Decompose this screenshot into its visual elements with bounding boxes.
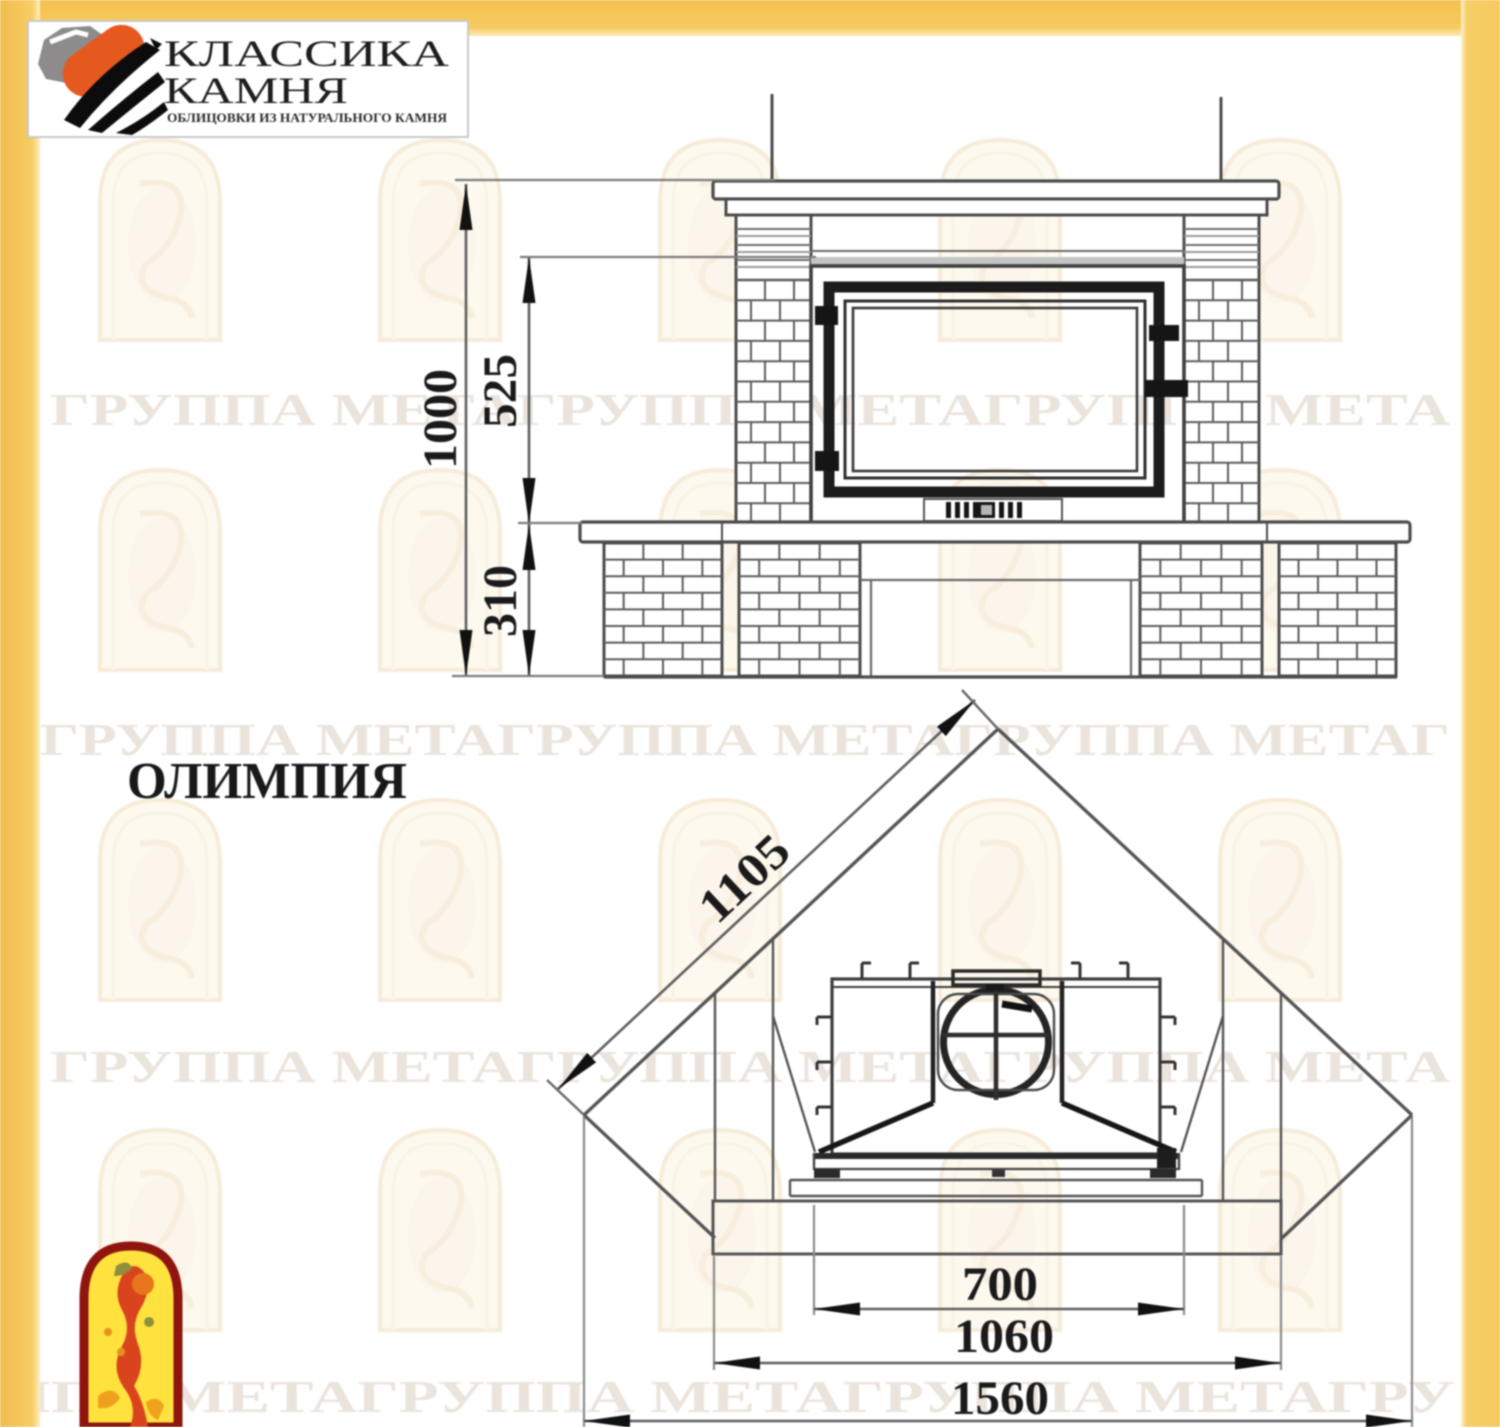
svg-text:525: 525 [474,354,527,428]
svg-text:КАМНЯ: КАМНЯ [164,71,348,112]
svg-text:ППА МЕТАГРУППА МЕТАГРУППА МЕТА: ППА МЕТАГРУППА МЕТАГРУППА МЕТАГРУ [0,1371,1455,1422]
svg-text:310: 310 [474,565,527,637]
svg-text:ГРУППА МЕТАГРУППА МЕТАГРУППА М: ГРУППА МЕТАГРУППА МЕТАГРУППА МЕТА [50,1041,1450,1092]
svg-text:ОБЛИЦОВКИ ИЗ НАТУРАЛЬНОГО КАМН: ОБЛИЦОВКИ ИЗ НАТУРАЛЬНОГО КАМНЯ [167,110,448,125]
svg-text:1000: 1000 [414,369,467,469]
svg-text:ОЛИМПИЯ: ОЛИМПИЯ [127,753,407,810]
svg-text:1560: 1560 [951,1372,1049,1425]
svg-text:700: 700 [962,1258,1038,1311]
svg-text:1060: 1060 [954,1310,1054,1363]
svg-text:КЛАССИКА: КЛАССИКА [164,34,449,75]
